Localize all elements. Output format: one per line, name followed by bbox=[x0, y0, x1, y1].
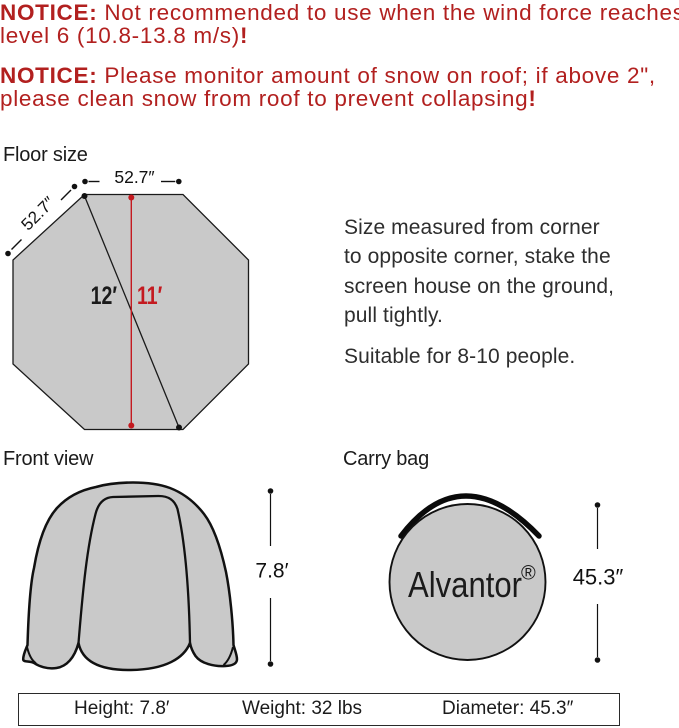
svg-text:11′: 11′ bbox=[137, 282, 162, 310]
svg-text:12′: 12′ bbox=[91, 282, 117, 310]
svg-text:52.7″: 52.7″ bbox=[114, 167, 154, 187]
svg-text:45.3″: 45.3″ bbox=[573, 565, 624, 590]
svg-text:Alvantor: Alvantor bbox=[408, 564, 522, 605]
svg-text:®: ® bbox=[521, 563, 536, 585]
svg-text:7.8′: 7.8′ bbox=[255, 560, 288, 583]
